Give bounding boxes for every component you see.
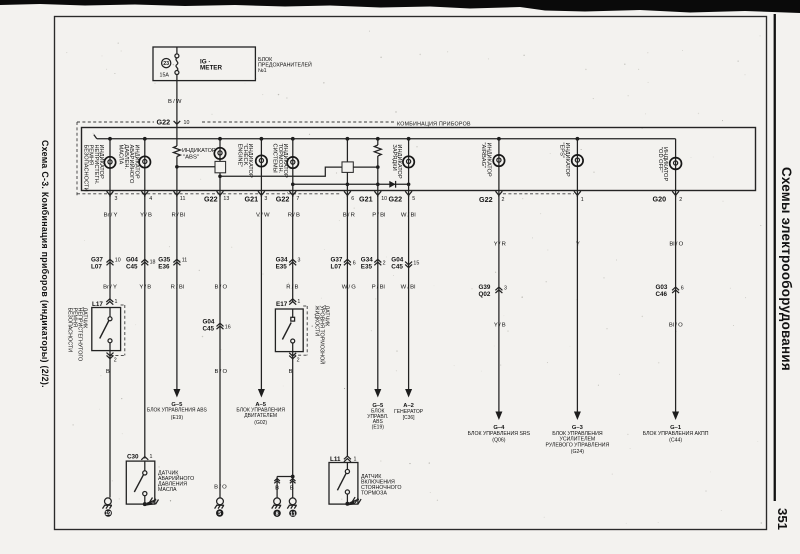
svg-text:B: B — [275, 486, 279, 492]
svg-text:2: 2 — [114, 358, 117, 364]
svg-text:ТОРМОЗА: ТОРМОЗА — [361, 491, 387, 497]
svg-text:5: 5 — [218, 511, 221, 517]
svg-text:Схема С-3. Комбинация приборов: Схема С-3. Комбинация приборов (индикато… — [40, 140, 50, 388]
svg-text:2: 2 — [502, 197, 505, 203]
svg-text:Bl / O: Bl / O — [669, 242, 683, 248]
svg-text:L07: L07 — [331, 264, 342, 271]
svg-text:1: 1 — [581, 197, 584, 203]
svg-text:3: 3 — [115, 196, 118, 202]
svg-text:(Q06): (Q06) — [492, 438, 506, 444]
svg-text:Q02: Q02 — [479, 291, 491, 298]
svg-text:B / W: B / W — [168, 99, 182, 105]
svg-text:1: 1 — [115, 299, 118, 305]
svg-text:РУЛЕВОГО УПРАВЛЕНИЯ: РУЛЕВОГО УПРАВЛЕНИЯ — [546, 442, 610, 448]
svg-text:E35: E35 — [361, 264, 373, 271]
svg-text:15: 15 — [413, 261, 419, 267]
svg-text:G21: G21 — [245, 195, 259, 204]
svg-text:БЛОК УПРАВЛЕНИЯ АКПП: БЛОК УПРАВЛЕНИЯ АКПП — [643, 431, 709, 437]
svg-text:C45: C45 — [391, 264, 403, 271]
svg-text:2: 2 — [297, 358, 300, 364]
svg-text:E17: E17 — [276, 301, 288, 308]
svg-text:СИСТЕМЫ: СИСТЕМЫ — [272, 144, 278, 173]
svg-text:B / R: B / R — [343, 213, 355, 219]
svg-text:6: 6 — [351, 196, 354, 202]
svg-text:METER: METER — [200, 65, 222, 72]
svg-text:E36: E36 — [158, 264, 170, 271]
svg-text:Y / B: Y / B — [139, 285, 151, 291]
svg-text:2: 2 — [383, 261, 386, 267]
svg-text:3: 3 — [504, 285, 507, 291]
svg-text:(G02): (G02) — [254, 420, 267, 426]
svg-text:R / B: R / B — [286, 285, 298, 291]
svg-text:10: 10 — [184, 120, 190, 126]
svg-text:R / B: R / B — [288, 213, 300, 219]
svg-text:Y / R: Y / R — [494, 242, 506, 248]
svg-text:G22: G22 — [157, 118, 171, 127]
svg-text:10: 10 — [381, 196, 387, 202]
svg-text:[C36]: [C36] — [403, 415, 416, 421]
svg-text:№1: №1 — [258, 68, 267, 74]
svg-text:R / Bl: R / Bl — [172, 213, 186, 219]
svg-text:Bl / O: Bl / O — [669, 323, 683, 329]
svg-text:Br / Y: Br / Y — [103, 285, 117, 291]
svg-text:1: 1 — [297, 299, 300, 305]
svg-text:6: 6 — [353, 261, 356, 267]
svg-text:C46: C46 — [656, 291, 668, 298]
svg-text:ИНДИКАТОР: ИНДИКАТОР — [182, 148, 216, 154]
svg-text:19: 19 — [105, 511, 111, 517]
svg-text:C45: C45 — [203, 326, 215, 333]
svg-text:G39: G39 — [479, 284, 491, 291]
svg-text:(C44): (C44) — [669, 438, 682, 444]
svg-text:ЗАРЯДКИ: ЗАРЯДКИ — [391, 144, 397, 170]
svg-text:B / O: B / O — [215, 369, 228, 375]
svg-text:G22: G22 — [389, 195, 403, 204]
svg-text:P / Bl: P / Bl — [372, 285, 385, 291]
svg-text:G21: G21 — [359, 195, 373, 204]
svg-text:Y / B: Y / B — [140, 213, 152, 219]
svg-text:18: 18 — [150, 260, 156, 266]
svg-text:11: 11 — [182, 258, 188, 264]
svg-text:БЕЗОПАСНОСТИ: БЕЗОПАСНОСТИ — [82, 145, 88, 192]
svg-text:(G24): (G24) — [571, 449, 585, 455]
svg-text:G03: G03 — [656, 284, 668, 291]
svg-text:БЕЗОПАСНОСТИ: БЕЗОПАСНОСТИ — [66, 308, 72, 353]
svg-text:10: 10 — [115, 258, 121, 264]
svg-text:8: 8 — [276, 512, 279, 518]
svg-text:3: 3 — [264, 196, 267, 202]
svg-text:C45: C45 — [126, 264, 138, 271]
svg-text:Y / B: Y / B — [494, 323, 506, 329]
svg-text:L07: L07 — [91, 264, 102, 271]
svg-text:R / Bl: R / Bl — [171, 285, 185, 291]
svg-text:G22: G22 — [479, 195, 493, 204]
svg-text:(E19): (E19) — [171, 415, 184, 421]
svg-text:ЖИДКОСТИ: ЖИДКОСТИ — [313, 306, 319, 337]
svg-text:МАСЛА: МАСЛА — [158, 487, 177, 493]
svg-text:E35: E35 — [276, 264, 288, 271]
svg-text:15A: 15A — [160, 72, 170, 78]
svg-text:13: 13 — [223, 196, 229, 202]
svg-text:"EPS": "EPS" — [559, 143, 565, 158]
svg-text:W / G: W / G — [342, 285, 357, 291]
svg-text:"AIRBAG": "AIRBAG" — [480, 143, 486, 169]
svg-text:G20: G20 — [653, 195, 667, 204]
svg-text:B: B — [290, 486, 294, 492]
svg-text:Схемы электрооборудования: Схемы электрооборудования — [779, 167, 794, 371]
svg-text:23: 23 — [163, 61, 169, 67]
svg-text:1: 1 — [150, 454, 153, 460]
svg-text:P / Bl: P / Bl — [372, 213, 385, 219]
svg-text:4: 4 — [149, 196, 152, 202]
svg-text:G22: G22 — [276, 195, 290, 204]
svg-text:ENGINE": ENGINE" — [237, 144, 243, 168]
svg-text:МАСЛА: МАСЛА — [118, 145, 124, 165]
svg-text:7: 7 — [296, 196, 299, 202]
svg-text:5: 5 — [412, 196, 415, 202]
svg-text:"OD OFF": "OD OFF" — [657, 147, 663, 173]
svg-text:2: 2 — [679, 197, 682, 203]
svg-text:351: 351 — [775, 508, 790, 530]
svg-text:6: 6 — [681, 285, 684, 291]
svg-text:ДВИГАТЕЛЕМ: ДВИГАТЕЛЕМ — [244, 413, 277, 419]
svg-text:G04: G04 — [203, 319, 215, 326]
svg-text:3: 3 — [298, 258, 301, 264]
svg-text:W / Bl: W / Bl — [401, 285, 416, 291]
svg-text:16: 16 — [225, 325, 231, 331]
svg-text:"ABS": "ABS" — [183, 154, 199, 160]
svg-text:B / O: B / O — [215, 285, 228, 291]
svg-text:V / W: V / W — [256, 213, 270, 219]
svg-text:БЛОК УПРАВЛЕНИЯ SRS: БЛОК УПРАВЛЕНИЯ SRS — [468, 431, 531, 437]
svg-text:КОМБИНАЦИЯ ПРИБОРОВ: КОМБИНАЦИЯ ПРИБОРОВ — [397, 122, 471, 128]
svg-text:11: 11 — [290, 512, 296, 518]
svg-text:B / O: B / O — [214, 485, 227, 491]
svg-text:1: 1 — [354, 457, 357, 463]
svg-text:C30: C30 — [127, 454, 139, 461]
svg-text:БЛОК УПРАВЛЕНИЯ ABS: БЛОК УПРАВЛЕНИЯ ABS — [147, 408, 208, 414]
svg-text:B: B — [289, 369, 293, 375]
svg-text:(E19): (E19) — [372, 424, 385, 430]
svg-text:11: 11 — [180, 196, 186, 202]
svg-text:B: B — [106, 369, 110, 375]
svg-text:G22: G22 — [204, 195, 218, 204]
